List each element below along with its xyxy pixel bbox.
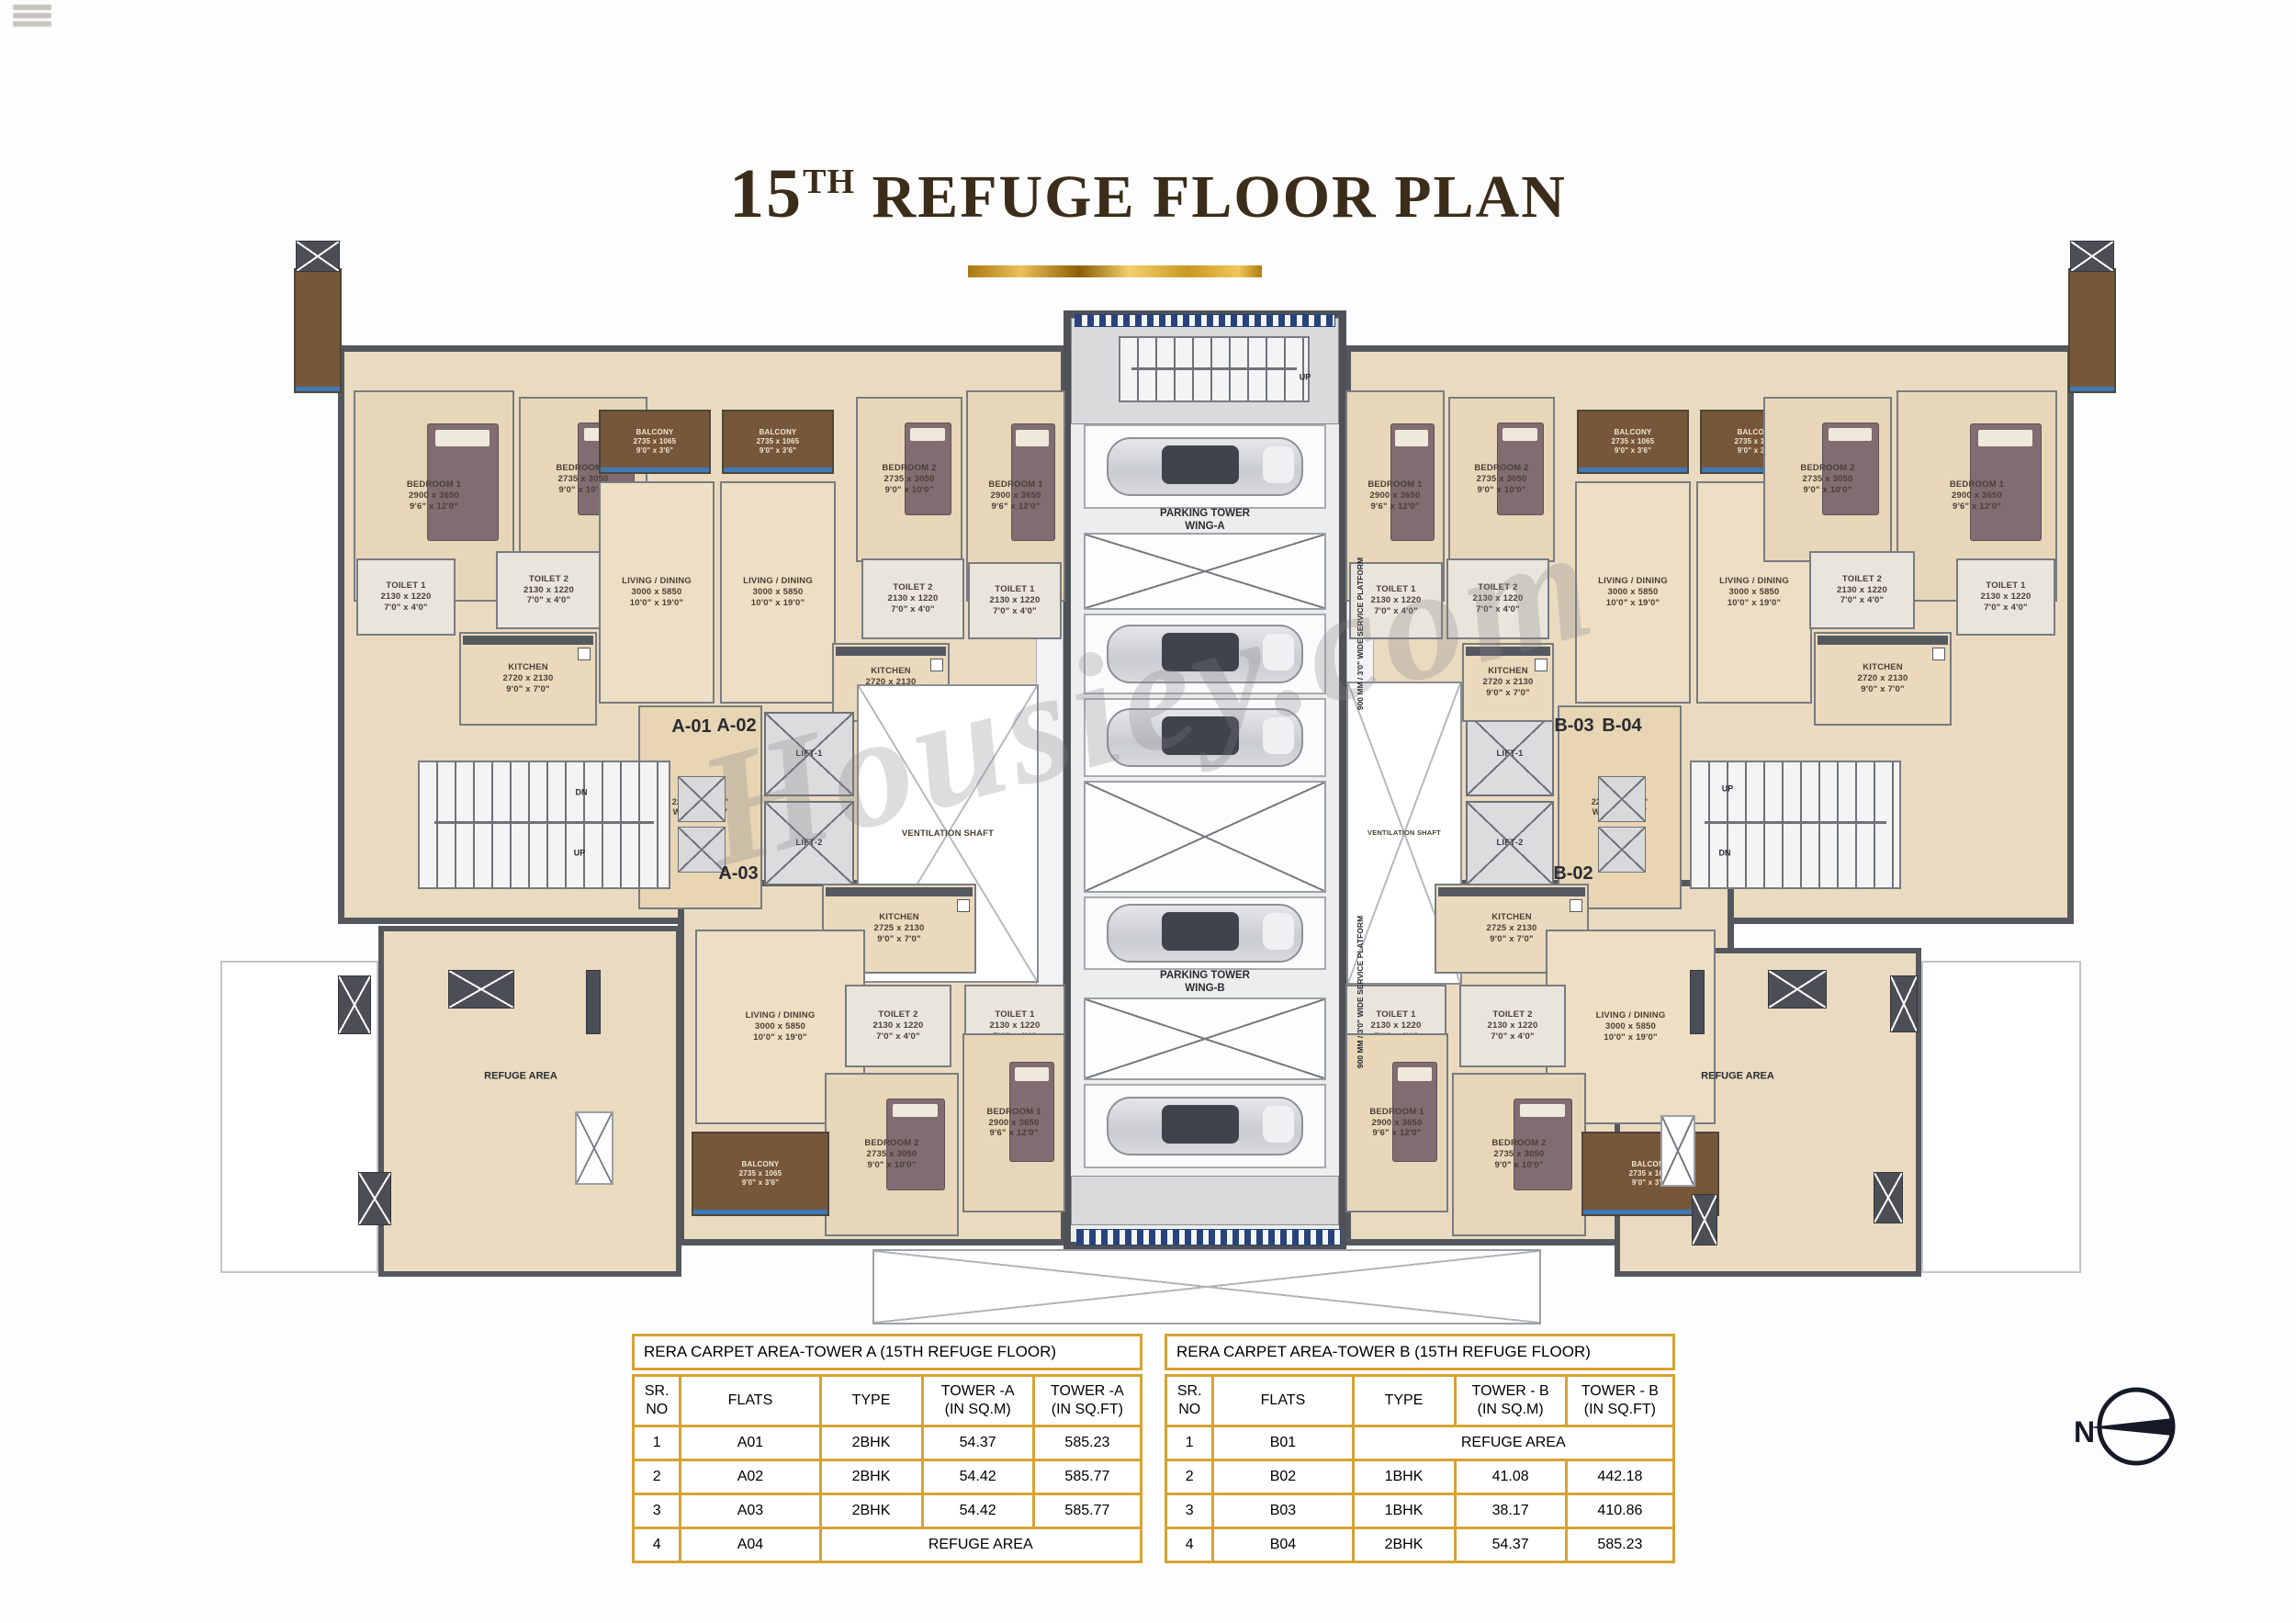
table-cell: 442.18	[1566, 1460, 1673, 1494]
title-floor-number: 15	[729, 155, 803, 232]
table-cell: 2BHK	[820, 1460, 922, 1494]
room-a02-living: LIVING / DINING 3000 x 5850 10'0" x 19'0…	[720, 481, 836, 704]
table-cell: A01	[681, 1426, 820, 1460]
room-a01-toilet1-label: TOILET 1 2130 x 1220 7'0" x 4'0"	[358, 560, 454, 634]
lift-1-tower-b: LIFT-1	[1466, 712, 1554, 796]
column	[1692, 1194, 1717, 1245]
table-row: 3A032BHK54.42585.77	[634, 1494, 1142, 1528]
room-a02-toilet2: TOILET 2 2130 x 1220 7'0" x 4'0"	[861, 558, 964, 639]
table-cell: 585.77	[1033, 1494, 1141, 1528]
table-cell: A03	[681, 1494, 820, 1528]
refuge-terrace-right	[1921, 961, 2081, 1273]
table-row: 4B042BHK54.37585.23	[1166, 1528, 1674, 1562]
room-a03-balcony: BALCONY 2735 x 1065 9'0" x 3'6"	[692, 1132, 829, 1216]
table-cell: A04	[681, 1528, 820, 1562]
table-row: 1B01REFUGE AREA	[1166, 1426, 1674, 1460]
column	[358, 1172, 391, 1225]
rera-table-tower-b-title: RERA CARPET AREA-TOWER B (15TH REFUGE FL…	[1165, 1334, 1675, 1370]
table-row: 3B031BHK38.17410.86	[1166, 1494, 1674, 1528]
table-cell: 1BHK	[1353, 1460, 1455, 1494]
car-icon	[1107, 437, 1303, 496]
table-cell: B04	[1213, 1528, 1353, 1562]
table-header-cell: TYPE	[1353, 1376, 1455, 1426]
table-cell: 2BHK	[820, 1494, 922, 1528]
floor-plan-page: 15TH REFUGE FLOOR PLAN BEDROOM 1 2900 x …	[0, 0, 2296, 1623]
column	[1768, 970, 1827, 1009]
room-a02-toilet1-label: TOILET 1 2130 x 1220 7'0" x 4'0"	[970, 564, 1060, 637]
room-b02-bedroom1: BEDROOM 1 2900 x 3650 9'6" x 12'0"	[1345, 1033, 1448, 1212]
room-a03-toilet2-label: TOILET 2 2130 x 1220 7'0" x 4'0"	[847, 986, 950, 1065]
car-icon	[1107, 904, 1303, 963]
room-a01-toilet2: TOILET 2 2130 x 1220 7'0" x 4'0"	[496, 551, 602, 629]
corner-column-right	[2070, 241, 2114, 272]
table-cell: 4	[634, 1528, 681, 1562]
table-cell: 38.17	[1455, 1494, 1566, 1528]
table-cell: 54.42	[922, 1494, 1033, 1528]
room-b04-bedroom2: BEDROOM 2 2735 x 3050 9'0" x 10'0"	[1763, 397, 1892, 562]
table-cell: REFUGE AREA	[820, 1528, 1141, 1562]
column	[1660, 1115, 1695, 1187]
table-header-cell: TOWER -A (IN SQ.M)	[922, 1376, 1033, 1426]
table-header-cell: TOWER - B (IN SQ.FT)	[1566, 1376, 1673, 1426]
room-b04-kitchen-label: KITCHEN 2720 x 2130 9'0" x 7'0"	[1816, 634, 1950, 724]
room-a02-toilet2-label: TOILET 2 2130 x 1220 7'0" x 4'0"	[863, 560, 962, 637]
table-cell: 54.37	[922, 1426, 1033, 1460]
bed-icon	[1514, 1099, 1572, 1189]
room-b04-kitchen: KITCHEN 2720 x 2130 9'0" x 7'0"	[1814, 632, 1952, 726]
room-a02-balcony-label: BALCONY 2735 x 1065 9'0" x 3'6"	[724, 411, 832, 472]
room-a01-living: LIVING / DINING 3000 x 5850 10'0" x 19'0…	[599, 481, 715, 704]
table-cell: A02	[681, 1460, 820, 1494]
corner-balcony-right	[2068, 268, 2116, 393]
table-cell: 3	[1166, 1494, 1213, 1528]
table-cell: 1	[1166, 1426, 1213, 1460]
duct-b1	[1598, 776, 1646, 822]
room-a01-balcony-label: BALCONY 2735 x 1065 9'0" x 3'6"	[601, 411, 709, 472]
tower-stair-top	[1119, 336, 1310, 402]
room-a01-kitchen: KITCHEN 2720 x 2130 9'0" x 7'0"	[459, 632, 597, 726]
title-underline-bar	[968, 265, 1262, 277]
bed-icon	[905, 423, 951, 515]
bed-icon	[1822, 423, 1879, 515]
room-a02-bedroom2: BEDROOM 2 2735 x 3050 9'0" x 10'0"	[856, 397, 962, 562]
floor-plan-drawing: BEDROOM 1 2900 x 3650 9'6" x 12'0"BEDROO…	[0, 0, 2296, 1623]
room-a03-toilet2: TOILET 2 2130 x 1220 7'0" x 4'0"	[845, 985, 951, 1067]
bed-icon	[1390, 423, 1435, 542]
table-row: 1A012BHK54.37585.23	[634, 1426, 1142, 1460]
table-cell: 2	[634, 1460, 681, 1494]
table-header-cell: SR. NO	[634, 1376, 681, 1426]
room-b04-toilet2-label: TOILET 2 2130 x 1220 7'0" x 4'0"	[1811, 553, 1913, 627]
table-cell: B01	[1213, 1426, 1353, 1460]
table-cell: B03	[1213, 1494, 1353, 1528]
table-cell: 585.23	[1566, 1528, 1673, 1562]
rera-table-tower-a-title: RERA CARPET AREA-TOWER A (15TH REFUGE FL…	[632, 1334, 1142, 1370]
hatch-strip-bottom	[1076, 1229, 1341, 1245]
bed-icon	[1970, 423, 2041, 542]
room-a02-balcony: BALCONY 2735 x 1065 9'0" x 3'6"	[722, 410, 834, 474]
lift-1-tower-b-label: LIFT-1	[1468, 714, 1552, 795]
staircase-tower-a	[418, 761, 670, 889]
bed-icon	[427, 423, 498, 542]
table-cell: 4	[1166, 1528, 1213, 1562]
room-b02-toilet2-label: TOILET 2 2130 x 1220 7'0" x 4'0"	[1461, 986, 1564, 1065]
table-cell: 2BHK	[1353, 1528, 1455, 1562]
lift-2-tower-b-label: LIFT-2	[1468, 803, 1552, 884]
room-a01-kitchen-label: KITCHEN 2720 x 2130 9'0" x 7'0"	[461, 634, 595, 724]
page-title: 15TH REFUGE FLOOR PLAN	[729, 154, 1567, 234]
room-b04-toilet1-label: TOILET 1 2130 x 1220 7'0" x 4'0"	[1958, 560, 2054, 634]
north-compass: N	[2074, 1382, 2193, 1483]
room-b03-balcony-label: BALCONY 2735 x 1065 9'0" x 3'6"	[1579, 411, 1687, 472]
column	[1874, 1172, 1903, 1223]
bed-icon	[886, 1099, 945, 1189]
refuge-area-left	[378, 926, 681, 1277]
table-cell: 410.86	[1566, 1494, 1673, 1528]
table-header-cell: TOWER -A (IN SQ.FT)	[1033, 1376, 1141, 1426]
table-cell: 585.77	[1033, 1460, 1141, 1494]
room-a02-living-label: LIVING / DINING 3000 x 5850 10'0" x 19'0…	[722, 483, 834, 702]
table-header-cell: FLATS	[1213, 1376, 1353, 1426]
bed-icon	[1009, 1062, 1055, 1162]
room-b04-toilet1: TOILET 1 2130 x 1220 7'0" x 4'0"	[1956, 558, 2055, 636]
column	[575, 1111, 613, 1185]
room-b02-toilet2: TOILET 2 2130 x 1220 7'0" x 4'0"	[1459, 985, 1566, 1067]
room-a01-living-label: LIVING / DINING 3000 x 5850 10'0" x 19'0…	[601, 483, 713, 702]
room-b04-toilet2: TOILET 2 2130 x 1220 7'0" x 4'0"	[1809, 551, 1915, 629]
table-header-cell: SR. NO	[1166, 1376, 1213, 1426]
north-label: N	[2074, 1415, 2095, 1449]
table-header-cell: TYPE	[820, 1376, 922, 1426]
bed-icon	[1011, 423, 1055, 542]
table-cell: 3	[634, 1494, 681, 1528]
table-row: 2A022BHK54.42585.77	[634, 1460, 1142, 1494]
room-a03-bedroom1: BEDROOM 1 2900 x 3650 9'6" x 12'0"	[962, 1033, 1065, 1212]
room-b02-bedroom2: BEDROOM 2 2735 x 3050 9'0" x 10'0"	[1452, 1073, 1586, 1236]
platform-x-3	[1084, 997, 1326, 1080]
lift-2-tower-b: LIFT-2	[1466, 801, 1554, 885]
staircase-tower-b	[1690, 761, 1901, 889]
table-cell: 54.37	[1455, 1528, 1566, 1562]
column	[448, 970, 514, 1009]
column	[1690, 970, 1705, 1034]
table-cell: 585.23	[1033, 1426, 1141, 1460]
title-text: REFUGE FLOOR PLAN	[855, 163, 1567, 231]
hatch-strip-top	[1075, 314, 1335, 327]
room-a03-balcony-label: BALCONY 2735 x 1065 9'0" x 3'6"	[693, 1133, 827, 1214]
table-cell: B02	[1213, 1460, 1353, 1494]
table-row: 4A04REFUGE AREA	[634, 1528, 1142, 1562]
table-cell: 1BHK	[1353, 1494, 1455, 1528]
column	[1890, 975, 1918, 1032]
rera-table-tower-b: RERA CARPET AREA-TOWER B (15TH REFUGE FL…	[1165, 1334, 1675, 1563]
table-header-cell: TOWER - B (IN SQ.M)	[1455, 1376, 1566, 1426]
table-header-cell: FLATS	[681, 1376, 820, 1426]
room-a03-bedroom2: BEDROOM 2 2735 x 3050 9'0" x 10'0"	[825, 1073, 959, 1236]
table-cell: 41.08	[1455, 1460, 1566, 1494]
corner-balcony-left	[294, 268, 342, 393]
table-cell: 2BHK	[820, 1426, 922, 1460]
bed-icon	[1392, 1062, 1438, 1162]
room-a01-toilet2-label: TOILET 2 2130 x 1220 7'0" x 4'0"	[498, 553, 600, 627]
table-cell: 1	[634, 1426, 681, 1460]
table-cell: 2	[1166, 1460, 1213, 1494]
car-icon	[1107, 1097, 1303, 1155]
column	[338, 975, 371, 1034]
room-a01-toilet1: TOILET 1 2130 x 1220 7'0" x 4'0"	[356, 558, 456, 636]
tower-landing-bottom	[1071, 1176, 1339, 1225]
rera-table-tower-a: RERA CARPET AREA-TOWER A (15TH REFUGE FL…	[632, 1334, 1142, 1563]
apron-bottom	[872, 1249, 1541, 1324]
table-cell: 54.42	[922, 1460, 1033, 1494]
room-b03-balcony: BALCONY 2735 x 1065 9'0" x 3'6"	[1577, 410, 1689, 474]
table-cell: REFUGE AREA	[1353, 1426, 1673, 1460]
column	[586, 970, 601, 1034]
table-row: 2B021BHK41.08442.18	[1166, 1460, 1674, 1494]
room-a01-balcony: BALCONY 2735 x 1065 9'0" x 3'6"	[599, 410, 711, 474]
duct-b2	[1598, 827, 1646, 873]
corner-column-left	[296, 241, 340, 272]
title-ordinal-suffix: TH	[803, 163, 855, 201]
